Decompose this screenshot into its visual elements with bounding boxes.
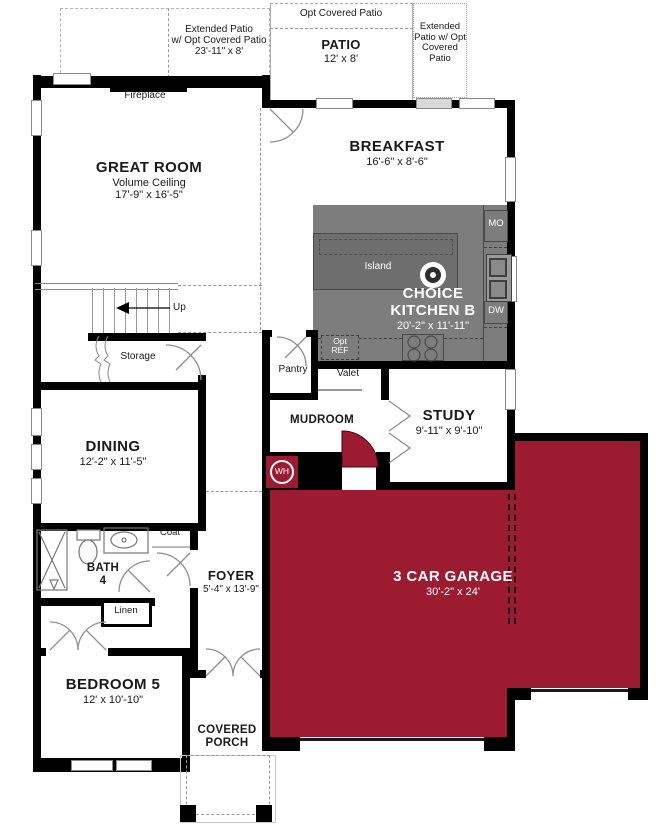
burner-icon [425,336,437,348]
foyer-label: FOYER 5'-4" x 13'-9" [203,569,259,595]
microwave-label: MO [488,219,503,230]
front-door-right [233,649,260,676]
storage-door-leaf [176,345,201,370]
bath4-label: BATH 4 [87,562,119,588]
squiggle-line-1 [95,336,101,382]
sink-icon [111,532,137,548]
garage-label: 3 CAR GARAGE 30'-2" x 24' [393,569,513,598]
breakfast-label: BREAKFAST 16'-6" x 8'-6" [349,139,444,168]
opt-ref-label: OptREF [332,337,349,355]
pantry-door-leaf [285,337,306,358]
covered-porch-label: COVERED PORCH [198,724,257,750]
toilet-icon [79,540,97,564]
wh-label: WH [275,467,289,476]
squiggle-line-2 [104,336,110,382]
cooktop-burners [408,336,437,361]
burner-icon [408,336,420,348]
bedroom5-label: BEDROOM 5 12' x 10'-10" [66,677,160,706]
great-room-label: GREAT ROOM Volume Ceiling 17'-9" x 16'-5… [96,160,202,201]
pantry-label: Pantry [279,364,308,375]
opt-covered-patio-label: Opt Covered Patio [300,8,382,19]
garage-entry-door [342,431,378,467]
valet-label: Valet [337,368,359,379]
front-door-left [206,649,233,676]
toilet-tank-icon [77,530,100,540]
burner-icon [408,349,420,361]
dining-label: DINING 12'-2" x 11'-5" [80,439,147,468]
up-label: Up [173,302,186,313]
fireplace-label: Fireplace [124,90,165,101]
island-label: Island [365,261,392,272]
bath-door-leaf [128,570,150,592]
up-arrow-icon [116,302,170,314]
kitchen-label: CHOICE KITCHEN B 20'-2" x 11'-11" [390,286,475,332]
dishwasher-label: DW [488,306,504,317]
shower-drain-icon [50,580,58,589]
linen-label: Linen [114,606,137,617]
study-door-leaf-1 [389,401,410,431]
burner-icon [425,349,437,361]
breakfast-door-leaf [270,109,293,132]
mudroom-label: MUDROOM [290,414,354,427]
patio-label: PATIO12' x 8' [321,38,360,65]
floor-plan: Extended Patiow/ Opt Covered Patio23'-11… [0,0,670,837]
extended-patio-right-label: ExtendedPatio w/ OptCoveredPatio [414,22,466,65]
sink-drain-icon [122,538,126,542]
study-label: STUDY 9'-11" x 9'-10" [416,408,483,437]
bedroom5-door-right [78,622,106,650]
bedroom5-door-left [50,622,78,650]
storage-label: Storage [120,351,155,362]
study-door-leaf-2 [389,433,410,463]
coat-label: Coat [160,528,180,539]
extended-patio-left-label: Extended Patiow/ Opt Covered Patio23'-11… [171,24,266,58]
break-lines [95,336,110,382]
